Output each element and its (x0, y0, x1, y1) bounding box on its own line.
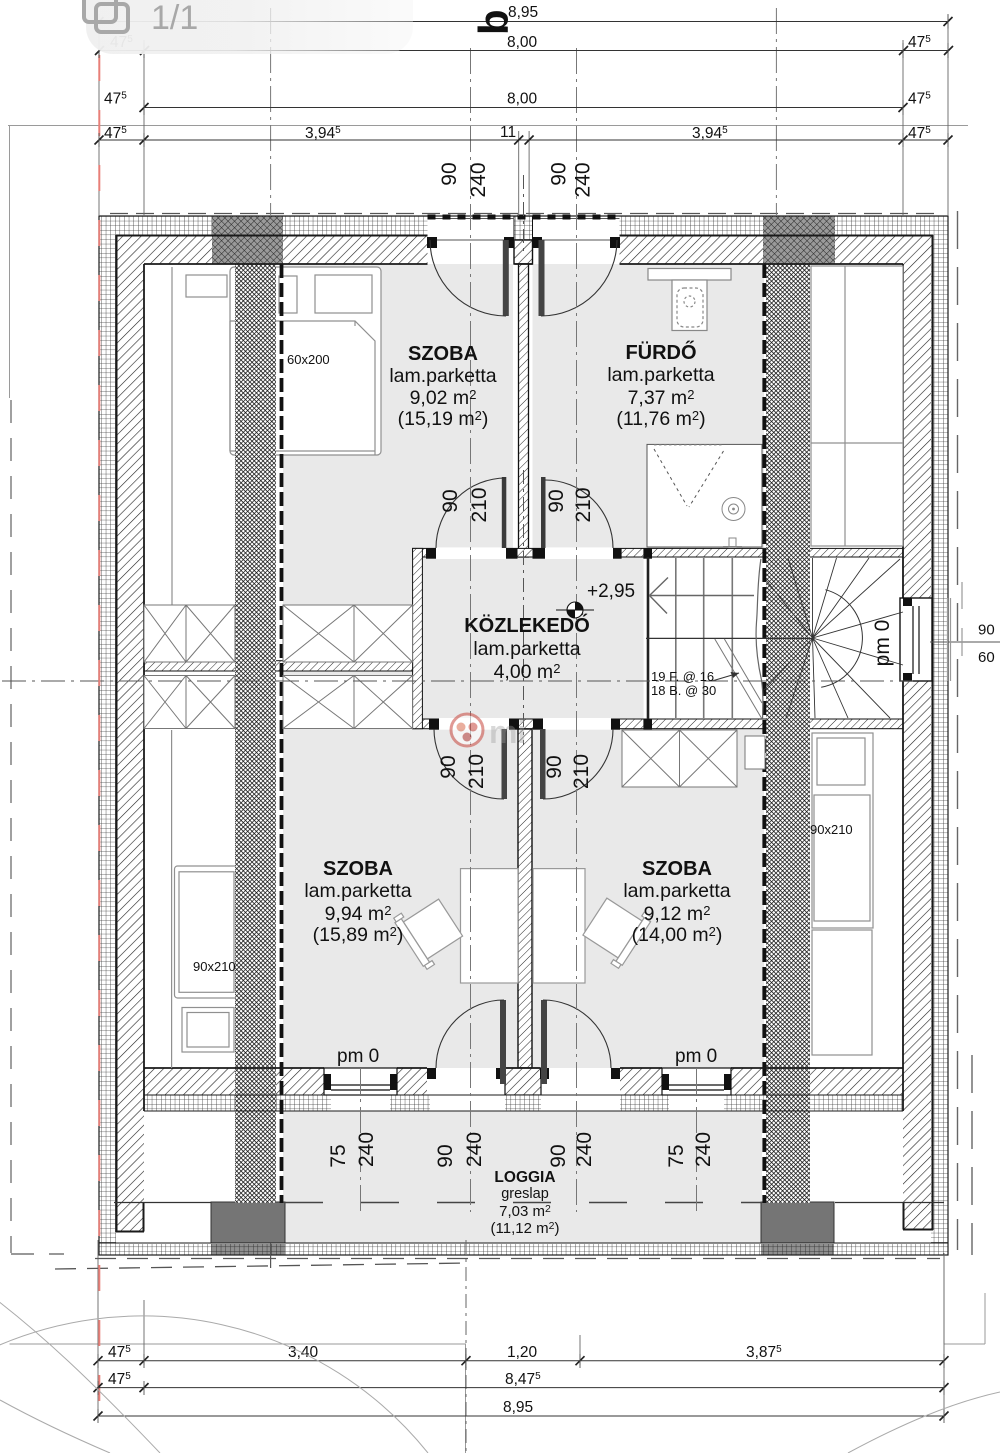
svg-text:11: 11 (500, 124, 516, 141)
svg-text:lam.parketta: lam.parketta (473, 638, 580, 660)
svg-text:90: 90 (437, 755, 460, 778)
svg-text:SZOBA: SZOBA (408, 343, 478, 365)
svg-text:9,12 m2: 9,12 m2 (644, 903, 711, 925)
svg-text:lam.parketta: lam.parketta (607, 364, 714, 386)
svg-text:FÜRDŐ: FÜRDŐ (625, 341, 696, 364)
svg-text:75: 75 (327, 1144, 350, 1167)
svg-text:8,00: 8,00 (507, 91, 538, 108)
svg-text:7,03 m2: 7,03 m2 (499, 1203, 551, 1220)
svg-text:9,02 m2: 9,02 m2 (410, 387, 477, 409)
svg-text:lam.parketta: lam.parketta (623, 880, 730, 902)
svg-text:240: 240 (573, 1132, 596, 1167)
svg-text:8,95: 8,95 (503, 1399, 533, 1416)
svg-text:1,20: 1,20 (507, 1344, 538, 1361)
svg-text:b: b (470, 9, 517, 35)
svg-text:90: 90 (543, 755, 566, 778)
svg-text:240: 240 (467, 162, 490, 197)
svg-text:240: 240 (355, 1132, 378, 1167)
svg-text:240: 240 (692, 1132, 715, 1167)
svg-text:9,94 m2: 9,94 m2 (325, 903, 392, 925)
svg-text:8,00: 8,00 (507, 34, 538, 51)
svg-text:90: 90 (545, 489, 568, 512)
svg-text:210: 210 (465, 754, 488, 789)
svg-text:mi: mi (489, 714, 526, 750)
svg-text:lam.parketta: lam.parketta (389, 365, 496, 387)
svg-text:SZOBA: SZOBA (642, 858, 712, 880)
svg-text:4,00 m2: 4,00 m2 (494, 661, 561, 683)
svg-text:90x210: 90x210 (810, 822, 853, 837)
svg-text:90: 90 (548, 162, 571, 185)
svg-text:60x200: 60x200 (287, 352, 330, 367)
svg-text:210: 210 (570, 754, 593, 789)
svg-text:60: 60 (978, 649, 995, 666)
svg-text:pm 0: pm 0 (871, 620, 894, 667)
svg-text:210: 210 (572, 487, 595, 522)
svg-text:LOGGIA: LOGGIA (494, 1169, 555, 1186)
svg-text:75: 75 (665, 1144, 688, 1167)
svg-text:greslap: greslap (501, 1186, 549, 1202)
svg-text:pm 0: pm 0 (675, 1046, 717, 1067)
svg-text:240: 240 (572, 162, 595, 197)
svg-text:90: 90 (434, 1144, 457, 1167)
svg-text:210: 210 (468, 487, 491, 522)
svg-text:pm 0: pm 0 (337, 1046, 379, 1067)
svg-text:90: 90 (439, 489, 462, 512)
svg-text:90x210: 90x210 (193, 959, 236, 974)
svg-text:90: 90 (438, 162, 461, 185)
svg-text:7,37 m2: 7,37 m2 (628, 387, 695, 409)
svg-text:18 B. @ 30: 18 B. @ 30 (651, 683, 716, 698)
svg-text:lam.parketta: lam.parketta (304, 880, 411, 902)
svg-text:90: 90 (547, 1144, 570, 1167)
svg-text:+2,95: +2,95 (587, 581, 635, 602)
svg-text:240: 240 (463, 1132, 486, 1167)
svg-text:SZOBA: SZOBA (323, 858, 393, 880)
svg-text:1/1: 1/1 (151, 0, 198, 37)
svg-text:90: 90 (978, 622, 995, 639)
svg-text:19 F. @ 16: 19 F. @ 16 (651, 669, 714, 684)
